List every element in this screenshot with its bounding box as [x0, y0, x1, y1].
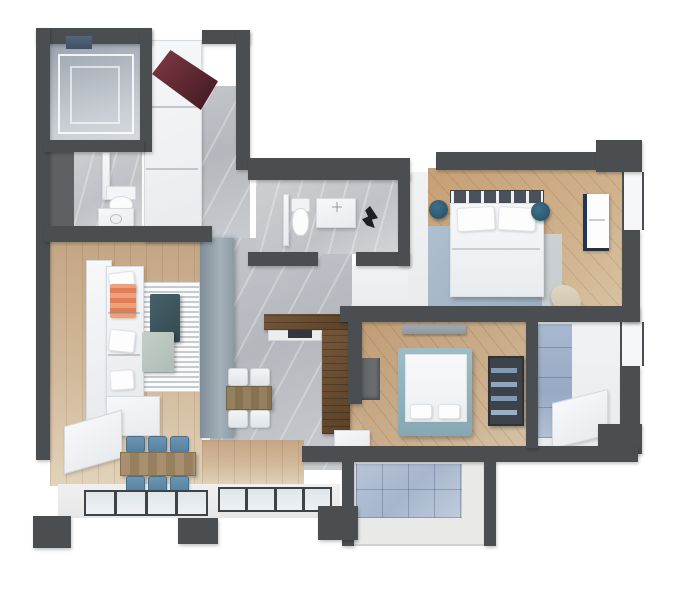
bed2-pillow	[410, 404, 432, 419]
wall-pier-2	[178, 518, 218, 544]
breakfast-table	[226, 386, 272, 410]
dresser	[402, 324, 466, 334]
wall-mid-horizontal	[340, 306, 640, 322]
wall-ensuite-left	[526, 322, 538, 448]
wall-bedroom2-left	[348, 322, 362, 404]
wall-living-top	[44, 226, 212, 242]
floor-window-group-2	[218, 487, 332, 512]
breakfast-chair	[250, 368, 270, 386]
corridor-strip	[352, 266, 408, 306]
wall-balcony-right	[484, 460, 496, 546]
breakfast-chair	[250, 410, 270, 428]
window-pane	[86, 492, 114, 514]
wall-right-lower	[620, 366, 640, 430]
window-pane	[277, 489, 302, 510]
wall-pier-3	[318, 506, 358, 540]
floor-window-group-1	[84, 490, 208, 516]
sink-basin	[110, 214, 122, 224]
window-pane	[178, 492, 206, 514]
wall-bathroom-top	[248, 158, 410, 180]
wire-shelving-inner	[70, 66, 120, 124]
window-pane	[148, 492, 176, 514]
room-dining-floor	[202, 440, 304, 486]
sofa-pillow	[108, 329, 136, 354]
shower-screen	[283, 194, 289, 246]
wall-storage-right	[140, 28, 152, 152]
nightstand-right	[531, 202, 550, 221]
dining-chair	[148, 436, 167, 453]
facade-window-right-2	[620, 322, 644, 366]
dining-chair	[170, 436, 189, 453]
wall-left	[36, 28, 50, 460]
facade-window-right-1	[622, 172, 644, 230]
coffee-table-sage	[142, 332, 174, 372]
master-window	[583, 194, 609, 251]
dining-table	[120, 452, 196, 476]
wall-entry-right	[236, 30, 250, 170]
breakfast-chair	[228, 410, 248, 428]
wall-bathroom-bottom-a	[248, 252, 318, 266]
wall-master-top	[436, 152, 606, 170]
sofa-pillow	[109, 369, 134, 391]
wall-storage-bath	[44, 140, 144, 152]
bed2-pillow	[438, 404, 460, 419]
storage-window	[66, 36, 92, 49]
dining-chair	[126, 436, 145, 453]
wall-top-left	[36, 28, 152, 44]
window-pane	[117, 492, 145, 514]
balcony-blue-tiles	[356, 464, 462, 518]
window-pane	[248, 489, 273, 510]
nightstand-left	[429, 200, 448, 219]
toilet-bowl-2	[292, 208, 309, 236]
shelf-unit	[488, 356, 524, 426]
wall-pier-1	[33, 516, 71, 548]
floor-plan-canvas	[0, 0, 680, 601]
window-pane	[220, 489, 245, 510]
kitchen-counter-side	[322, 330, 350, 434]
service-shaft	[50, 150, 74, 228]
kitchen-counter-top	[264, 314, 350, 330]
breakfast-chair	[228, 368, 248, 386]
cooktop	[288, 330, 312, 338]
bed-pillow	[456, 206, 495, 232]
wall-bathroom-right	[398, 172, 410, 266]
wall-top-right-corner	[596, 140, 642, 172]
